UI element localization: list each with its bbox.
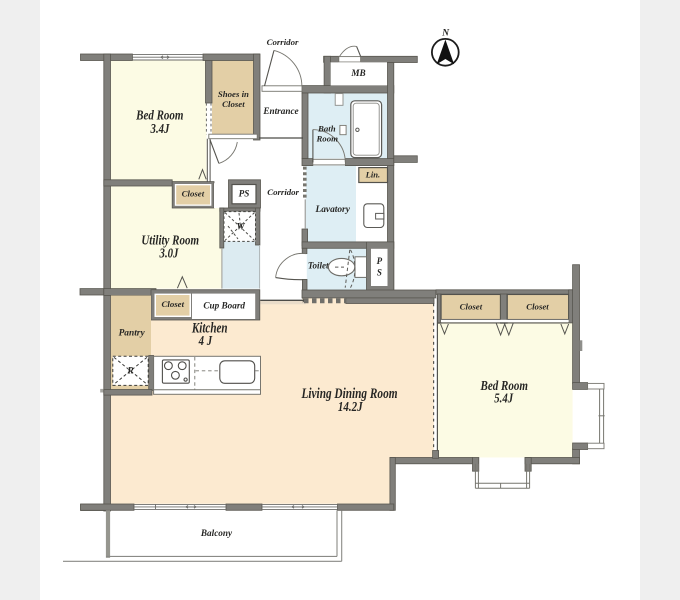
- svg-text:Lavatory: Lavatory: [315, 205, 351, 215]
- svg-text:Pantry: Pantry: [119, 328, 146, 338]
- svg-text:Closet: Closet: [182, 189, 205, 199]
- svg-text:3.4J: 3.4J: [150, 121, 170, 137]
- svg-text:Lin.: Lin.: [365, 169, 381, 179]
- svg-text:Balcony: Balcony: [200, 528, 233, 538]
- svg-text:Room: Room: [315, 133, 338, 143]
- svg-text:Closet: Closet: [460, 302, 483, 312]
- svg-text:Shoes in: Shoes in: [218, 89, 249, 99]
- svg-text:MB: MB: [350, 68, 365, 78]
- svg-text:3.0J: 3.0J: [159, 245, 179, 261]
- svg-text:N: N: [441, 29, 450, 39]
- svg-text:Bath: Bath: [317, 123, 336, 133]
- svg-text:W: W: [237, 221, 246, 231]
- svg-text:Cup Board: Cup Board: [203, 301, 245, 311]
- svg-text:S: S: [377, 268, 382, 278]
- svg-text:P: P: [377, 256, 383, 266]
- svg-text:PS: PS: [239, 188, 250, 198]
- svg-text:Corridor: Corridor: [267, 187, 299, 197]
- svg-text:R: R: [127, 365, 134, 375]
- svg-text:Toilet: Toilet: [308, 260, 329, 270]
- svg-text:5.4J: 5.4J: [494, 390, 514, 406]
- svg-text:14.2J: 14.2J: [338, 399, 363, 415]
- svg-text:Closet: Closet: [222, 99, 245, 109]
- svg-text:Corridor: Corridor: [267, 37, 299, 47]
- svg-text:Closet: Closet: [162, 299, 185, 309]
- svg-text:Entrance: Entrance: [262, 106, 298, 116]
- svg-text:Closet: Closet: [526, 302, 549, 312]
- svg-text:4 J: 4 J: [198, 333, 213, 349]
